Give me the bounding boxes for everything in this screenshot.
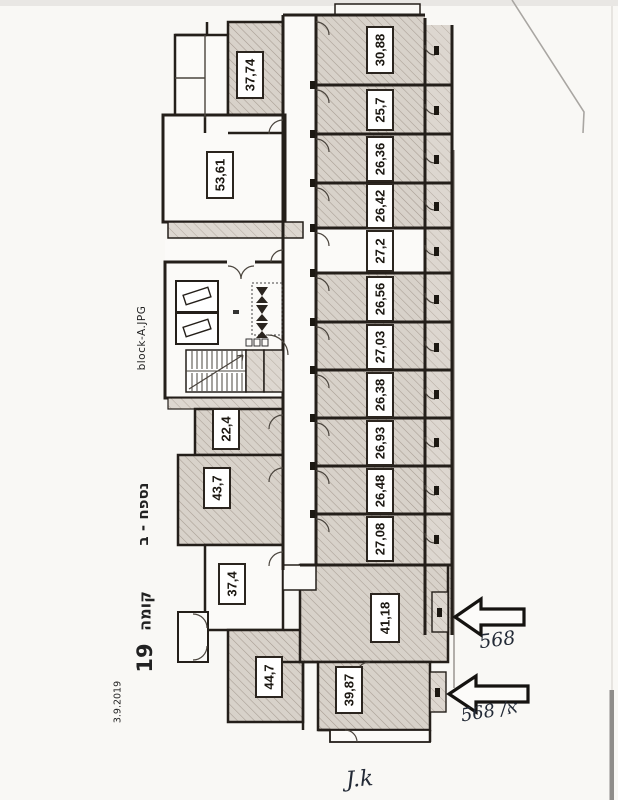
area-label-22-4: 22,4 [213, 409, 239, 449]
vestibule [165, 240, 283, 262]
svg-text:27,03: 27,03 [373, 331, 388, 364]
bridge-strip [168, 398, 283, 409]
area-label-53-61: 53,61 [207, 152, 233, 198]
signature-note: J.k [341, 766, 374, 793]
lobby-mark [233, 310, 239, 314]
area-label-26-38: 26,38 [367, 373, 393, 417]
area-label-26-93: 26,93 [367, 421, 393, 465]
plan-drawing: 30,88 25,7 26,36 26,42 27,2 26,56 27,03 … [163, 4, 454, 742]
margin-text: block-A.JPG נספח - ב קומה 19 3.9.2019 [113, 306, 158, 724]
appendix-label: נספח - ב [134, 483, 152, 546]
area-label-27-2: 27,2 [367, 231, 393, 271]
rooms-top-left-white [175, 35, 228, 118]
svg-text:53,61: 53,61 [213, 159, 228, 192]
area-label-26-36: 26,36 [367, 137, 393, 181]
area-label-43-7: 43,7 [204, 468, 230, 508]
svg-text:44,7: 44,7 [262, 664, 277, 689]
scanned-floor-plan-page: 30,88 25,7 26,36 26,42 27,2 26,56 27,03 … [0, 0, 618, 800]
area-label-39-87: 39,87 [336, 667, 362, 713]
svg-text:26,42: 26,42 [373, 190, 388, 223]
svg-text:30,88: 30,88 [373, 34, 388, 67]
file-label: block-A.JPG [136, 306, 148, 371]
scan-right-shadow-bar [610, 690, 615, 800]
corridor-stub [283, 565, 316, 590]
scan-top-edge [0, 0, 618, 6]
bottom-step [330, 730, 430, 742]
svg-text:22,4: 22,4 [219, 416, 234, 442]
service-cell-2 [264, 350, 283, 392]
svg-text:27,2: 27,2 [373, 238, 388, 263]
service-cell-1 [246, 350, 264, 392]
date-label: 3.9.2019 [113, 681, 124, 723]
svg-text:41,18: 41,18 [378, 602, 393, 635]
core-entry-gap [227, 259, 255, 265]
svg-text:26,36: 26,36 [373, 143, 388, 176]
svg-text:37,4: 37,4 [225, 571, 240, 597]
svg-text:37,74: 37,74 [243, 58, 258, 91]
scan-corner-fold-line [512, 0, 584, 133]
svg-text:39,87: 39,87 [342, 674, 357, 707]
area-label-26-42: 26,42 [367, 184, 393, 228]
floor-number: 19 [133, 643, 157, 672]
area-label-25-7: 25,7 [367, 90, 393, 130]
room-39-87 [318, 662, 430, 730]
area-label-27-08: 27,08 [367, 517, 393, 561]
area-label-26-56: 26,56 [367, 277, 393, 321]
svg-text:43,7: 43,7 [210, 475, 225, 500]
area-label-30-88: 30,88 [367, 27, 393, 73]
annotation-note-1: 568 [478, 627, 517, 653]
area-label-41-18: 41,18 [371, 594, 399, 642]
floor-plan-scan: 30,88 25,7 26,36 26,42 27,2 26,56 27,03 … [0, 0, 618, 800]
svg-text:26,38: 26,38 [373, 379, 388, 412]
svg-text:26,48: 26,48 [373, 475, 388, 508]
svg-text:26,56: 26,56 [373, 283, 388, 316]
svg-text:25,7: 25,7 [373, 97, 388, 122]
corridor [283, 15, 316, 570]
area-label-37-74: 37,74 [237, 52, 263, 98]
area-label-37-4: 37,4 [219, 564, 245, 604]
area-label-44-7: 44,7 [256, 657, 282, 697]
area-label-27-03: 27,03 [367, 325, 393, 369]
svg-text:27,08: 27,08 [373, 523, 388, 556]
svg-text:26,93: 26,93 [373, 427, 388, 460]
floor-word: קומה [136, 591, 155, 631]
area-label-26-48: 26,48 [367, 469, 393, 513]
